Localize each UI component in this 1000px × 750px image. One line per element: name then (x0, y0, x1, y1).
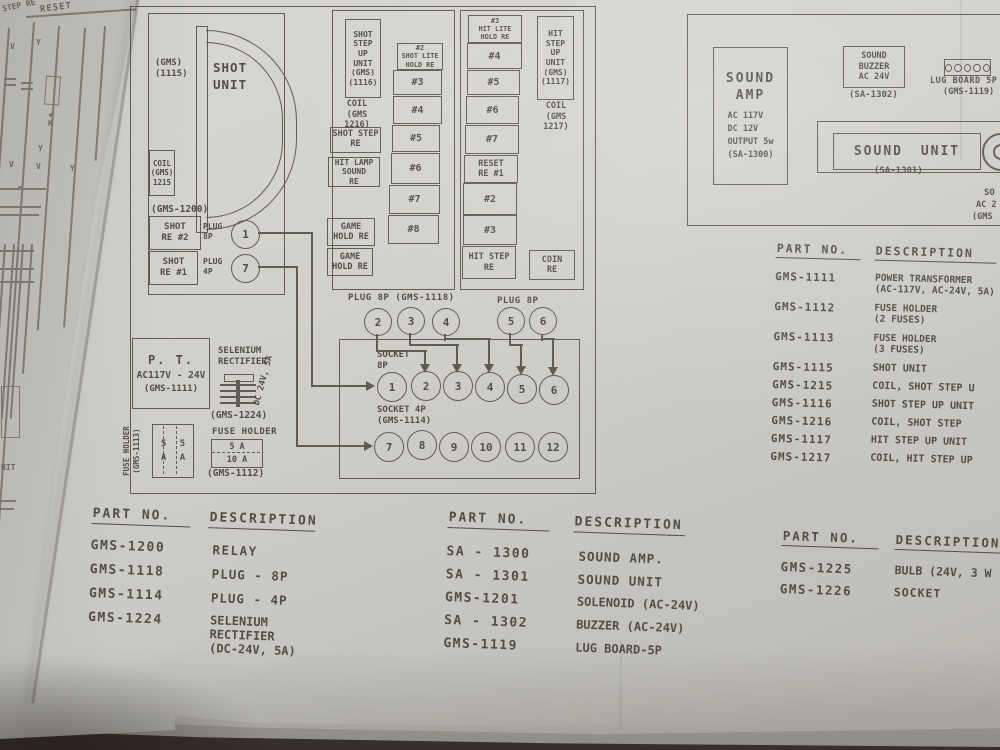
sound-amp-specs: AC 117V DC 12V OUTPUT 5w (SA-1300) (727, 110, 773, 161)
hit-step-box: #2 (463, 183, 517, 215)
clipped-part-label: (GMS (972, 212, 992, 222)
shot-step-fuse-box: #4 (393, 96, 442, 124)
shot-re1-box: SHOT RE #1 (149, 251, 198, 285)
parts-list-main: PART NO. DESCRIPTION GMS-1111POWER TRANS… (770, 241, 1000, 469)
part-desc: PLUG - 4P (211, 590, 288, 608)
lug-hole-icon (973, 64, 980, 72)
rectifier-symbol-fin (220, 384, 256, 386)
lug-board-box (944, 59, 991, 76)
underlay-step-re-label: STEP RE (1, 0, 36, 13)
socket-pin-6: 6 (539, 375, 569, 405)
part-desc: COIL, SHOT STEP U (872, 381, 975, 395)
lug-board-part-label: (GMS-1119) (943, 87, 994, 97)
fuse-2-bottom-value: 10 A (227, 454, 247, 466)
pt-rating: AC117V - 24V (137, 370, 206, 381)
fuse-holder-2-part-label: (GMS-1112) (207, 468, 264, 479)
part-desc: LUG BOARD-5P (575, 641, 662, 658)
wire-segment (552, 338, 554, 368)
fuse-holder-3-box: 5 5 A A (152, 424, 194, 478)
lug-hole-icon (945, 64, 952, 72)
parts-list-right: PART NO. DESCRIPTION GMS-1225BULB (24V, … (780, 528, 1000, 604)
lug-board-label: LUG BOARD 5P (930, 76, 997, 86)
plug-pin-3: 3 (397, 307, 425, 335)
capacitor-symbol (21, 82, 33, 84)
socket-pin-5: 5 (507, 374, 537, 404)
underlay-y-label: Y (36, 38, 41, 47)
plug-a-label: PLUG 8P (GMS-1118) (348, 293, 455, 303)
sound-buzzer-box: SOUND BUZZER AC 24V (843, 46, 905, 88)
socket-pin-10: 10 (471, 432, 501, 462)
part-no: GMS-1216 (771, 414, 871, 430)
shot-re2-box: SHOT RE #2 (149, 216, 201, 250)
part-desc: SOLENOID (AC-24V) (577, 595, 700, 613)
underlay-v-label: V (9, 160, 14, 169)
underlay-wire (0, 214, 39, 216)
underlay-hit-label: HIT (1, 463, 15, 472)
hit-step-box: #3 HIT LITE HOLD RE (468, 15, 522, 43)
fuse-holder-2-label: FUSE HOLDER (212, 427, 277, 437)
junction-dot (49, 113, 53, 117)
part-no: SA - 1300 (446, 544, 578, 564)
arrow-right-icon (366, 381, 375, 391)
shot-step-fuse-box: #2 SHOT LITE HOLD RE (397, 43, 443, 70)
wire-segment (258, 232, 313, 234)
wire-segment (424, 350, 426, 365)
underlay-wire (0, 250, 34, 252)
sound-unit-box: SOUND UNIT (833, 133, 981, 170)
arrow-right-icon (364, 441, 373, 451)
underlay-y-label: Y (70, 164, 75, 173)
plug-pin-2: 2 (364, 308, 392, 336)
socket-pin-7: 7 (374, 432, 404, 462)
underlay-wire (0, 508, 14, 510)
part-no: GMS-1201 (445, 590, 577, 610)
socket-pin-12: 12 (538, 432, 568, 462)
column-header-part-no: PART NO. (91, 506, 191, 527)
hit-coil-label: COIL (GMS 1217) (536, 101, 576, 133)
hit-step-box: #3 (463, 215, 517, 245)
part-no: GMS-1117 (771, 432, 871, 448)
coin-re-box: COIN RE (529, 250, 575, 280)
socket-4p-label: SOCKET 4P (GMS-1114) (377, 405, 431, 428)
clipped-rating-label: AC 2 (976, 200, 996, 210)
part-desc: RELAY (212, 542, 258, 559)
shot-step-fuse-box: #7 (389, 185, 440, 214)
plug-b-label: PLUG 8P (497, 296, 538, 306)
plug-pin-4: 4 (432, 308, 460, 336)
part-desc: FUSE HOLDER (2 FUSES) (874, 302, 937, 326)
sound-amp-box: SOUND AMP AC 117V DC 12V OUTPUT 5w (SA-1… (713, 47, 788, 185)
underlay-y-label: Y (38, 144, 43, 153)
fuse-divider (163, 426, 164, 474)
part-no: GMS-1113 (773, 330, 873, 346)
part-no: GMS-1116 (772, 396, 872, 412)
underlay-wire (0, 281, 34, 283)
selenium-part-label: (GMS-1224) (210, 410, 267, 421)
underlay-wire (0, 268, 34, 270)
plug-4p-pin-7: 7 (231, 254, 260, 283)
part-desc: HIT STEP UP UNIT (871, 435, 968, 449)
part-no: SA - 1302 (444, 613, 576, 633)
part-desc: SHOT UNIT (873, 363, 927, 375)
part-no: GMS-1115 (773, 360, 873, 376)
parts-list-left: PART NO. DESCRIPTION GMS-1200RELAY GMS-1… (87, 506, 317, 659)
selenium-rectifier-label: SELENIUM RECTIFIER (218, 346, 267, 368)
underlay-wire (0, 206, 41, 208)
reset-re1-box: RESET RE #1 (464, 155, 518, 183)
shot-step-fuse-box: #6 (391, 153, 440, 184)
underlay-wire (22, 244, 33, 374)
part-no: GMS-1200 (90, 538, 212, 557)
part-no: GMS-1111 (775, 270, 875, 286)
photographed-manual-page: STEP RE RESET V Y K Y V V Y HIT (0, 0, 1000, 750)
hit-step-re-box: HIT STEP RE (462, 246, 516, 279)
part-no: GMS-1224 (88, 610, 210, 629)
hit-step-box: #4 (467, 43, 522, 69)
column-header-description: DESCRIPTION (894, 532, 1000, 554)
socket-pin-8: 8 (407, 430, 437, 460)
shot-unit-part-label: (GMS) (1115) (155, 58, 188, 80)
socket-pin-1: 1 (377, 372, 407, 402)
pt-title: P. T. (148, 353, 194, 367)
lug-hole-icon (983, 64, 990, 72)
part-no: GMS-1215 (772, 378, 872, 394)
shot-step-fuse-box: #8 (388, 215, 439, 244)
hit-step-up-unit-box: HIT STEP UP UNIT (GMS) (1117) (537, 16, 574, 100)
shot-coil-box: COIL (GMS) 1215 (149, 150, 175, 196)
socket-pin-4: 4 (475, 372, 505, 402)
hit-step-box: #5 (467, 70, 520, 95)
socket-8p-label: SOCKET 8P (377, 350, 410, 373)
component-box (1, 386, 20, 438)
underlay-wire (37, 26, 60, 330)
sound-unit-part-label: (SA-1301) (874, 166, 923, 176)
wire-segment (444, 338, 491, 340)
underlay-v-label: V (10, 42, 15, 51)
sound-amp-title: SOUND AMP (726, 71, 775, 105)
game-hold-re-box: GAME HOLD RE (327, 218, 375, 246)
column-header-part-no: PART NO. (781, 528, 879, 549)
part-no: GMS-1225 (780, 559, 894, 578)
rectifier-symbol-fin (220, 390, 256, 392)
part-desc: SHOT STEP UP UNIT (872, 399, 975, 413)
arrow-down-icon (516, 366, 526, 375)
part-desc: SOUND UNIT (577, 572, 663, 590)
wire-segment (456, 344, 458, 365)
wire-segment (376, 350, 427, 352)
shot-unit-name-label: SHOT UNIT (213, 60, 247, 94)
socket-pin-9: 9 (439, 432, 469, 462)
wire-segment (488, 338, 490, 365)
relay-symbol (44, 76, 61, 106)
relay-group-part-label: (GMS-1200) (151, 204, 208, 215)
capacitor-symbol (4, 84, 16, 86)
underlay-wire (0, 28, 10, 243)
underlay-k-label: K (48, 119, 53, 128)
part-desc: SOCKET (894, 585, 942, 601)
part-no: GMS-1118 (90, 562, 212, 581)
capacitor-symbol (21, 88, 33, 90)
part-desc: PLUG - 8P (211, 566, 288, 584)
shot-step-fuse-box: #3 (393, 70, 442, 95)
paper-crease (960, 0, 962, 160)
arrow-down-icon (484, 364, 494, 373)
underlay-wire (0, 188, 46, 190)
plug-8p-pin-1: 1 (231, 220, 260, 249)
underlay-v-label: V (36, 162, 41, 171)
part-no: GMS-1217 (770, 450, 870, 466)
arrow-down-icon (452, 364, 462, 373)
underlay-wire (0, 500, 16, 502)
part-desc: FUSE HOLDER (3 FUSES) (873, 332, 936, 356)
fuse-divider (212, 452, 260, 453)
column-header-description: DESCRIPTION (573, 514, 686, 536)
capacitor-symbol (4, 78, 16, 80)
clipped-solenoid-label: SO (984, 188, 995, 198)
part-desc: SELENIUM RECTIFIER (DC-24V, 5A) (209, 614, 297, 658)
wire-segment (520, 344, 522, 367)
plug-pin-6: 6 (529, 307, 557, 335)
hit-lamp-sound-re-box: HIT LAMP SOUND RE (328, 157, 380, 187)
hit-step-box: #7 (465, 125, 519, 154)
column-header-description: DESCRIPTION (875, 244, 997, 264)
fuse-holder-3-label: FUSE HOLDER (GMS-1113) (122, 424, 142, 478)
junction-dot (18, 186, 22, 190)
lug-hole-icon (964, 64, 971, 72)
column-header-part-no: PART NO. (447, 510, 550, 532)
socket-pin-2: 2 (411, 371, 441, 401)
part-no: SA - 1301 (445, 567, 577, 587)
fuse-holder-2-box: 5 A 10 A (211, 439, 263, 468)
rectifier-symbol-fin (220, 402, 256, 404)
arrow-down-icon (420, 364, 430, 373)
game-hold-re-box: GAME HOLD RE (327, 248, 373, 276)
fuse-divider (176, 426, 177, 474)
plug-4p-label: PLUG 4P (203, 257, 222, 278)
sound-buzzer-part-label: (SA-1302) (849, 90, 898, 100)
wire-segment (296, 445, 365, 447)
part-desc: BULB (24V, 3 W (894, 563, 991, 580)
underlay-wire (63, 28, 86, 327)
plug-8p-label: PLUG 8P (203, 222, 222, 243)
part-desc: COIL, SHOT STEP (871, 417, 962, 430)
parts-list-center: PART NO. DESCRIPTION SA - 1300SOUND AMP.… (443, 510, 713, 660)
wire-segment (311, 385, 367, 387)
part-desc: SOUND AMP. (578, 549, 664, 567)
shot-step-up-unit-box: SHOT STEP UP UNIT (GMS) (1116) (345, 19, 381, 98)
part-desc: BUZZER (AC-24V) (576, 618, 685, 636)
wire-segment (409, 344, 459, 346)
paper-crease (620, 640, 622, 730)
arrow-down-icon (548, 367, 558, 376)
power-transformer-box: P. T. AC117V - 24V (GMS-1111) (132, 338, 210, 409)
part-desc: POWER TRANSFORMER (AC-117V, AC-24V, 5A) (875, 273, 996, 299)
part-desc: COIL, HIT STEP UP (870, 453, 973, 467)
wire-segment (296, 266, 298, 447)
part-no: GMS-1112 (774, 300, 874, 316)
shot-step-fuse-box: #5 (392, 125, 440, 152)
rectifier-symbol-fin (220, 396, 256, 398)
hit-step-box: #6 (466, 96, 519, 124)
wire-segment (311, 232, 313, 387)
pt-part: (GMS-1111) (144, 384, 198, 394)
part-no: GMS-1114 (89, 586, 211, 605)
shot-step-re-box: SHOT STEP RE (330, 127, 381, 153)
column-header-part-no: PART NO. (776, 241, 861, 260)
column-header-description: DESCRIPTION (208, 510, 316, 532)
socket-pin-11: 11 (505, 432, 535, 462)
wire-segment (258, 266, 298, 268)
underlay-wire (95, 26, 106, 161)
plug-pin-5: 5 (497, 307, 525, 335)
socket-pin-3: 3 (443, 371, 473, 401)
